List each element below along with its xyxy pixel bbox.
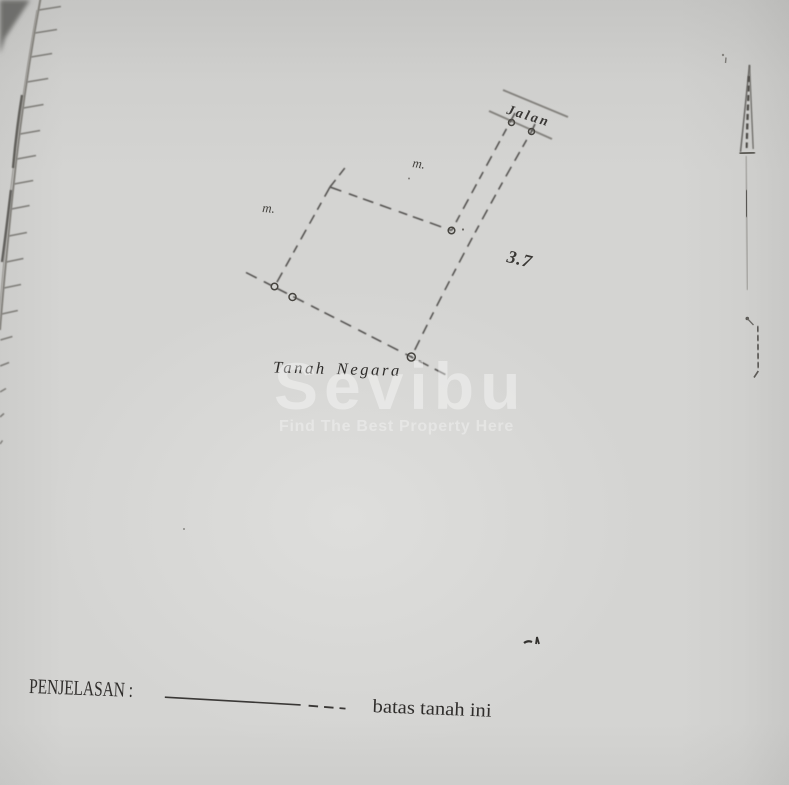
svg-text:Sevibu: Sevibu [274, 349, 526, 423]
svg-text:Find The Best Property Here: Find The Best Property Here [279, 418, 514, 435]
svg-text:batas tanah ini: batas tanah ini [372, 696, 492, 722]
svg-text:m.: m. [262, 200, 276, 216]
svg-text:m.: m. [412, 155, 427, 172]
svg-text:PENJELASAN :: PENJELASAN : [29, 674, 134, 702]
svg-text:3.7: 3.7 [504, 246, 535, 272]
